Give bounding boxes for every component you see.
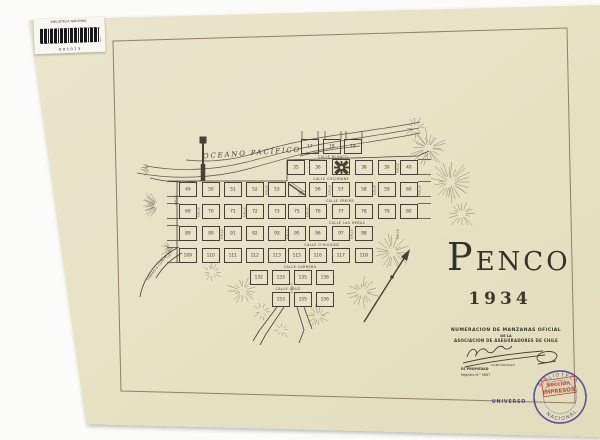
- map-block: 79: [378, 204, 396, 219]
- map-block-number: 70: [208, 208, 214, 213]
- map-block-number: 98: [361, 230, 367, 235]
- map-block-number: 72: [252, 208, 258, 213]
- map-block-number: 155: [299, 296, 307, 301]
- map-block: 78: [355, 204, 373, 219]
- map-block-number: 56: [315, 186, 321, 191]
- map-block-number: 40: [406, 164, 412, 169]
- map-block-number: 110: [207, 252, 215, 257]
- map-blocks-layer: 1718193536383940495051525356575859606970…: [0, 0, 600, 440]
- map-block-number: 49: [185, 186, 191, 191]
- map-block-number: 115: [293, 252, 301, 257]
- map-block-number: 71: [230, 208, 236, 213]
- legend-line1: NUMERACION DE MANZANAS OFICIAL: [451, 327, 561, 332]
- map-block: 98: [355, 226, 373, 241]
- map-block: 97: [332, 226, 350, 241]
- legend-line3: ASOCIACION DE ASEGURADORES DE CHILE: [454, 339, 558, 344]
- street-label-vertical: CALLE: [418, 185, 421, 195]
- map-block: 72: [246, 204, 264, 219]
- map-block-number: 117: [337, 252, 345, 257]
- map-block-number: 38: [361, 164, 367, 169]
- map-block-number: 133: [277, 274, 285, 279]
- map-block: 60: [400, 182, 418, 197]
- map-block-number: 79: [384, 208, 390, 213]
- map-block-number: 135: [299, 274, 307, 279]
- map-block-number: 97: [338, 230, 344, 235]
- map-block: 58: [355, 182, 373, 197]
- plaza-block: [332, 159, 350, 175]
- map-block-number: 50: [208, 186, 214, 191]
- map-block-number: 77: [338, 208, 344, 213]
- map-block: 38: [355, 160, 373, 175]
- map-block: 70: [202, 204, 220, 219]
- street-label-vertical: CALLE: [220, 229, 223, 239]
- map-block: 118: [355, 248, 373, 263]
- street-label-vertical: CALLE: [373, 185, 376, 195]
- map-block-number: 91: [230, 230, 236, 235]
- map-block-number: 118: [360, 252, 368, 257]
- map-block: 49: [179, 182, 197, 197]
- map-block-number: 52: [252, 186, 258, 191]
- map-block-number: 113: [273, 252, 281, 257]
- map-block: 56: [309, 182, 327, 197]
- street-label-vertical: CALLE: [174, 195, 177, 205]
- map-block-number: 53: [274, 186, 280, 191]
- register-number: Registro N.° 5887: [461, 373, 490, 377]
- map-block: 59: [378, 182, 396, 197]
- map-block-number: 51: [230, 186, 236, 191]
- scanned-map-page: BIBLIOTECA NACIONAL ★ ★ Sección IMPRESOS…: [0, 0, 600, 440]
- map-block-number: 19: [350, 143, 356, 148]
- map-title: PENCO: [447, 240, 557, 279]
- map-block: 92: [246, 226, 264, 241]
- map-block: 96: [309, 226, 327, 241]
- map-block: 36: [309, 160, 327, 175]
- map-block: 111: [224, 248, 242, 263]
- street-label-vertical: CALLE: [197, 207, 200, 217]
- map-block: 69: [179, 204, 197, 219]
- street-label: CALLE COCHRANE: [313, 177, 349, 181]
- map-block-number: 36: [315, 164, 321, 169]
- map-block-number: 132: [255, 274, 263, 279]
- street-label-vertical: CALLE: [396, 163, 399, 173]
- map-block-number: 80: [406, 208, 412, 213]
- street-label: CALLE FREIRE: [326, 199, 354, 203]
- map-block: 93: [268, 226, 286, 241]
- map-block-number: 153: [277, 296, 285, 301]
- map-block: 109: [179, 248, 197, 263]
- street-label-vertical: CALLE: [286, 229, 289, 239]
- map-block-number: 57: [338, 186, 344, 191]
- map-block: 115: [288, 248, 306, 263]
- map-block-number: 35: [293, 164, 299, 169]
- map-block-number: 60: [406, 186, 412, 191]
- map-block-number: 90: [208, 230, 214, 235]
- map-block: 91: [224, 226, 242, 241]
- map-block-number: 59: [384, 186, 390, 191]
- map-block-number: 69: [185, 208, 191, 213]
- map-block: 51: [224, 182, 242, 197]
- street-label-vertical: CALLE: [306, 207, 309, 217]
- plaza-star-icon: [333, 160, 350, 175]
- street-label: CALLE CRUZ: [276, 287, 301, 291]
- map-block: 133: [272, 270, 290, 285]
- map-block-number: 17: [307, 143, 313, 148]
- map-block-number: 111: [229, 252, 237, 257]
- map-block: 77: [332, 204, 350, 219]
- map-block: 75: [288, 204, 306, 219]
- map-block-number: 55: [298, 190, 304, 195]
- map-block: 112: [246, 248, 264, 263]
- map-block-number: 58: [361, 186, 367, 191]
- map-block: 155: [294, 292, 312, 307]
- property-note: ES PROPIEDAD: [461, 367, 488, 371]
- map-block: 35: [287, 160, 305, 175]
- map-block-number: 109: [184, 252, 192, 257]
- map-block-number: 78: [361, 208, 367, 213]
- street-label-vertical: CALLE: [328, 185, 331, 195]
- street-label-vertical: CALLE: [290, 283, 293, 293]
- map-block-number: 93: [274, 230, 280, 235]
- map-block-number: 136: [321, 274, 329, 279]
- map-block-number: 18: [329, 143, 335, 148]
- map-block: 80: [400, 204, 418, 219]
- map-block: 116: [309, 248, 327, 263]
- map-block-number: 116: [314, 252, 322, 257]
- street-label-vertical: CALLE: [396, 229, 399, 239]
- map-block: 135: [294, 270, 312, 285]
- map-year: 1934: [468, 289, 531, 309]
- map-block-split: 55: [288, 182, 306, 197]
- title-rest: ENCO: [476, 247, 571, 277]
- map-block: 89: [179, 226, 197, 241]
- map-block: 18: [323, 139, 341, 154]
- map-block: 136: [316, 270, 334, 285]
- map-block: 110: [202, 248, 220, 263]
- printer-mark: UNIVERSO: [492, 399, 526, 405]
- map-block-number: 75: [294, 208, 300, 213]
- map-block: 73: [268, 204, 286, 219]
- legend-line2: DE LA: [500, 334, 511, 338]
- map-block: 52: [246, 182, 264, 197]
- map-block: 117: [332, 248, 350, 263]
- map-block: 90: [202, 226, 220, 241]
- map-block: 95: [288, 226, 306, 241]
- map-block-number: 39: [384, 164, 390, 169]
- map-block: 156: [316, 292, 334, 307]
- map-block: 19: [344, 139, 362, 154]
- map-block: 50: [202, 182, 220, 197]
- title-initial: P: [447, 235, 476, 279]
- street-label: CALLE LAS HERAS: [329, 221, 365, 225]
- map-block-number: 96: [315, 230, 321, 235]
- map-block-number: 73: [274, 208, 280, 213]
- map-block: 39: [378, 160, 396, 175]
- map-block-number: 76: [315, 208, 321, 213]
- map-block: 132: [250, 270, 268, 285]
- street-label-vertical: CALLE: [265, 185, 268, 195]
- street-label-vertical: CALLE: [243, 207, 246, 217]
- map-block: 57: [332, 182, 350, 197]
- map-block: 17: [301, 139, 319, 154]
- map-block: 76: [309, 204, 327, 219]
- map-block: 153: [272, 292, 290, 307]
- map-block-number: 112: [251, 252, 259, 257]
- map-block-number: 89: [185, 230, 191, 235]
- map-block: 53: [268, 182, 286, 197]
- map-block: 113: [268, 248, 286, 263]
- map-block-number: 92: [252, 230, 258, 235]
- map-block: 71: [224, 204, 242, 219]
- street-label: CALLE BLANCO: [318, 155, 348, 159]
- street-label: CALLE O'HIGGINS: [304, 243, 339, 247]
- signature-caption: COMISIONADO: [491, 363, 515, 367]
- map-block-number: 95: [294, 230, 300, 235]
- street-label-vertical: CALLE: [350, 229, 353, 239]
- map-block: 40: [400, 160, 418, 175]
- street-label: CALLE CARRERA: [284, 265, 317, 269]
- map-block-number: 156: [321, 296, 329, 301]
